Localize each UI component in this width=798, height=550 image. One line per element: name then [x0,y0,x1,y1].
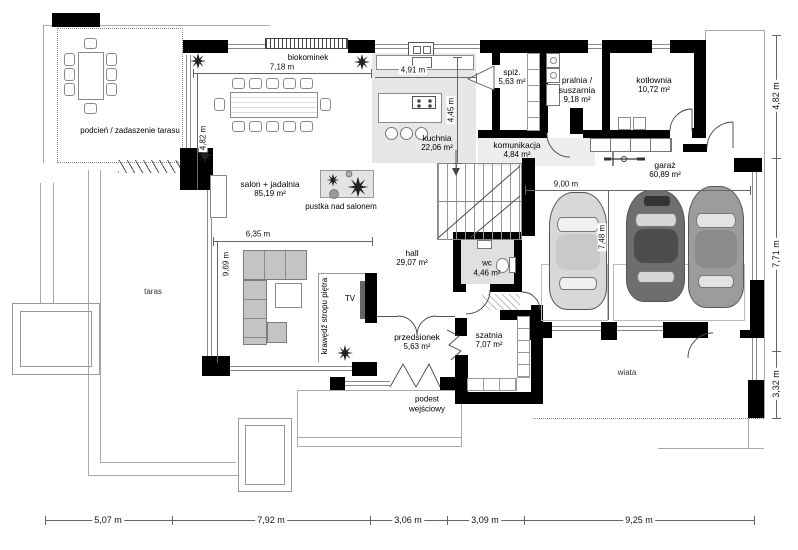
wall-segment [348,40,375,53]
dimension-line [213,241,372,242]
room-area: 4,84 m² [493,150,540,160]
room-label-podcien: podcień / zadaszenie tarasu [80,126,180,136]
toilet-tank [509,257,516,273]
room-area: 7,07 m² [475,340,502,350]
outdoor-chair [84,38,97,49]
wall-segment [183,40,228,53]
bar-stool [385,127,398,140]
dining-chair [266,121,279,132]
dimension-tick [524,516,525,525]
coffee-table [275,283,302,308]
wall-segment [352,362,377,376]
dimension-label: 3,09 m [469,515,501,525]
wall-segment [610,40,652,53]
dining-chair [249,121,262,132]
plant-icon [354,54,370,70]
biokominek-label: biokominek [288,53,328,63]
dimension-tick [453,163,462,164]
wall-segment [683,144,707,152]
dining-chair [214,98,225,111]
planter-box [238,418,292,492]
tv-label: TV [345,294,355,304]
paving-edge-line [658,448,764,449]
wall-segment [602,40,610,135]
dining-chair [249,78,262,89]
wall-segment [455,318,467,336]
room-area: 5,63 m² [394,342,440,352]
wall-segment [522,158,535,236]
dimension-line [217,241,218,363]
door-frame-line [377,316,398,317]
wall-segment [480,40,588,53]
cooktop [412,96,436,109]
dimension-tick [45,516,46,525]
staircase [437,163,522,240]
room-area: 5,63 m² [498,77,525,87]
garage-door [752,172,757,280]
vent-cell [413,46,421,54]
dimension-line [608,190,609,320]
wardrobe-shelves [517,316,530,378]
outdoor-chair [84,103,97,114]
room-name: podcień / zadaszenie tarasu [80,126,180,136]
bicycle-icon [604,152,645,166]
car-roof [695,230,737,268]
dimension-label: 7,71 m [771,238,781,270]
room-label-pralnia: pralnia / suszarnia9,18 m² [551,75,603,105]
vent-cell [423,46,431,54]
room-area: 29,07 m² [396,258,428,268]
wall-segment [570,108,583,134]
washing-machine [546,53,560,68]
car-roof [556,234,600,270]
car-windshield [696,213,736,228]
dining-chair [283,78,296,89]
dining-chair [232,78,245,89]
dimension-tick [193,69,194,78]
outdoor-chair [106,68,117,81]
dimension-tick [772,351,781,352]
dimension-label: 4,82 m [771,80,781,112]
pantry-shelves [527,53,540,131]
entry-platform-step [297,437,462,438]
outdoor-chair [106,83,117,96]
dining-table [230,92,318,118]
garden-path-line [53,183,54,303]
dimension-label: 3,32 m [771,368,781,400]
room-label-kotlownia: kotłownia10,72 m² [636,75,671,95]
room-area: 22,06 m² [421,143,453,153]
dimension-line [375,77,476,78]
garden-path-line [40,183,41,303]
bio-fireplace [265,38,348,49]
carport-roof-line [764,30,765,418]
terrace-edge-line [100,170,101,462]
wall-segment [692,128,706,138]
room-name: salon + jadalnia [240,179,299,189]
car-windshield [635,213,677,227]
room-label-przedsionek: przedsionek5,63 m² [394,332,440,352]
void-over-livingroom-box [320,170,374,198]
wall-segment [440,377,455,390]
room-name: wc [473,258,500,268]
dining-chair [283,121,296,132]
taras-label: taras [144,287,162,297]
dimension-label: 7,92 m [255,515,287,525]
tv-unit [360,281,365,319]
dimension-tick [172,516,173,525]
wall-segment [750,280,764,331]
wall-segment [601,322,617,340]
carport-roof-line [705,30,764,31]
dimension-tick [371,69,372,78]
wc-sink [477,240,492,249]
dimension-tick [370,516,371,525]
dimension-label: 4,91 m [399,66,427,75]
dimension-label: 3,06 m [392,515,424,525]
wall-segment [490,284,522,292]
wall-segment [734,158,762,172]
dimension-label: 4,45 m [447,96,456,124]
dimension-label: 9,25 m [623,515,655,525]
room-name: pralnia / suszarnia [551,75,603,95]
sofa-section [267,322,287,343]
car [688,186,744,308]
plant-icon [190,53,206,69]
terrace-roof-line [43,25,44,163]
sideboard [210,175,227,218]
wall-segment [492,88,500,132]
planter-box [12,303,100,375]
dimension-tick [754,516,755,525]
threshold-hatch [482,294,520,310]
wall-segment [740,330,764,338]
sliding-window [230,366,352,371]
dimension-line [525,190,750,191]
wall-segment [365,273,377,323]
door-arc [670,109,692,131]
dimension-tick [750,186,751,195]
wall-segment [694,40,706,135]
dimension-tick [772,35,781,36]
dimension-tick [372,237,373,246]
dimension-label: 6,35 m [244,230,272,239]
room-name: spiż. [498,67,525,77]
wall-segment [583,130,670,138]
wall-segment [202,356,230,376]
stair-treads [438,202,521,239]
outdoor-chair [106,53,117,66]
dimension-tick [772,418,781,419]
room-name: kuchnia [421,133,453,143]
stair-landing-line [438,201,521,202]
room-area: 4,46 m² [473,268,500,278]
wall-segment [492,53,500,65]
car-roof [634,229,678,263]
hatch-marks [118,160,180,173]
window [186,55,191,148]
car-rear-window [698,275,734,288]
bar-stool [400,127,413,140]
garage-door [752,331,757,380]
terrace-edge-line [100,462,236,463]
entry-sidelight-window [345,381,390,386]
window [652,44,670,49]
outdoor-chair [64,83,75,96]
wall-segment [748,380,764,418]
door-arc [707,122,733,148]
room-area: 10,72 m² [636,85,671,95]
dimension-tick [453,57,462,58]
room-area: 9,18 m² [551,95,603,105]
room-area: 85,19 m² [240,189,299,199]
boiler-unit [633,117,646,130]
wall-segment [478,130,547,138]
void-label: pustka nad salonem [305,202,377,212]
room-label-kuchnia: kuchnia22,06 m² [421,133,453,153]
dimension-tick [213,237,214,246]
podest-label: podest wejściowy [401,394,453,413]
wardrobe-shelves [467,378,517,391]
dimension-line [457,57,458,163]
outdoor-chair [64,68,75,81]
car-rear-window [559,277,597,290]
sofa-section [243,280,267,345]
covered-terrace-boundary [57,28,183,163]
wall-segment [52,13,100,27]
dimension-tick [447,516,448,525]
carport-boundary [533,418,764,419]
dining-chair [320,98,331,111]
room-name: kotłownia [636,75,671,85]
outdoor-table [78,52,104,100]
garage-door [552,326,601,331]
dimension-label: 7,48 m [598,223,607,251]
dining-chair [300,121,313,132]
stair-treads [438,164,521,202]
washer-drum [550,57,557,64]
garage-cabinets [590,138,672,152]
dining-chair [232,121,245,132]
wall-segment [453,232,461,292]
dimension-label: 4,82 m [199,124,208,152]
room-label-garaz: garaż60,89 m² [649,160,681,180]
window [228,44,265,49]
terrace-edge-line [88,475,238,476]
room-label-komunikacja: komunikacja4,84 m² [493,140,540,160]
wiata-label: wiata [618,368,637,378]
slab-edge-label: krawędź stropu piętra [320,278,330,354]
room-label-szatnia: szatnia7,07 m² [475,330,502,350]
dimension-line [193,73,371,74]
door-frame-line [436,316,455,317]
dining-chair [300,78,313,89]
dimension-label: 7,18 m [268,63,296,72]
car-rear-window [637,271,675,283]
sofa-section [243,250,307,280]
car-sunroof [644,196,670,206]
room-name: szatnia [475,330,502,340]
room-area: 60,89 m² [649,170,681,180]
entry-door-zigzag [390,364,440,387]
paving-edge-line [748,418,749,448]
wall-segment [663,322,708,338]
room-label-hall: hall29,07 m² [396,248,428,268]
dimension-tick [772,158,781,159]
car [626,190,685,302]
dimension-label: 9,69 m [222,250,231,278]
boiler-unit [618,117,631,130]
wall-segment [330,377,345,390]
dimension-tick [476,73,477,82]
room-name: komunikacja [493,140,540,150]
room-label-spiz: spiż.5,63 m² [498,67,525,87]
dining-chair [266,78,279,89]
room-label-salon: salon + jadalnia85,19 m² [240,179,299,199]
wall-segment [453,284,466,292]
room-label-wc: wc4,46 m² [473,258,500,277]
outdoor-chair [64,53,75,66]
room-name: przedsionek [394,332,440,342]
garage-door [617,326,663,331]
car-windshield [557,217,599,232]
wall-segment [455,392,543,404]
room-name: garaż [649,160,681,170]
floor-plan: podcień / zadaszenie tarasu salon + jada… [0,0,798,550]
dimension-label: 5,07 m [92,515,124,525]
dimension-label: 9,00 m [552,180,580,189]
room-name: hall [396,248,428,258]
dimension-tick [525,186,526,195]
